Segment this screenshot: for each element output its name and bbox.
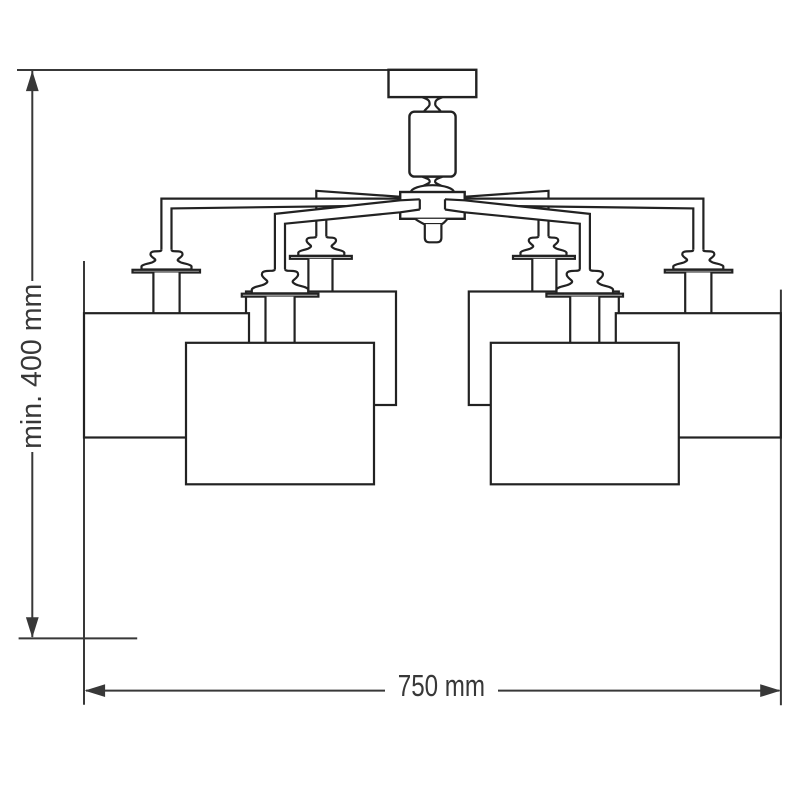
svg-text:750 mm: 750 mm bbox=[398, 668, 485, 703]
svg-text:min. 400 mm: min. 400 mm bbox=[16, 284, 48, 449]
